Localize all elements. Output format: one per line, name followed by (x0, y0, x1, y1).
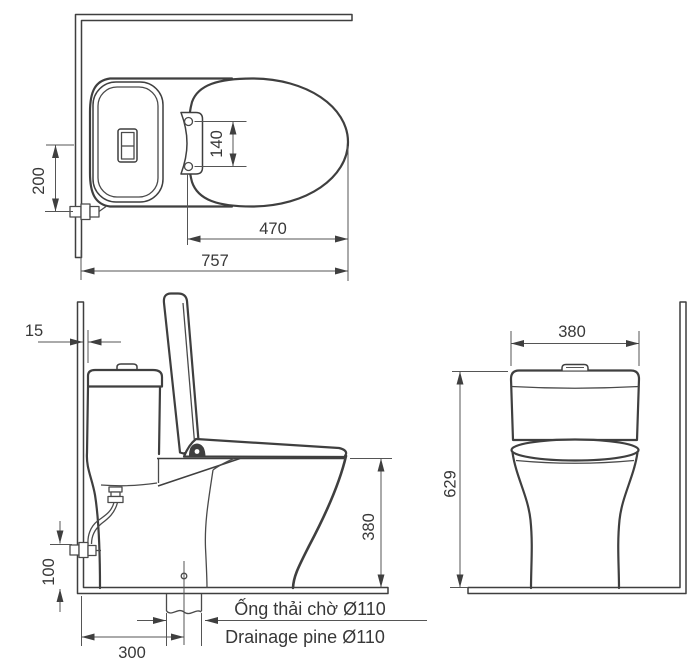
bowl-outline-side (293, 456, 346, 588)
supply-valve-side (88, 546, 96, 556)
dim-supply-height-label: 100 (40, 558, 58, 586)
top-view: 140 200 470 757 (30, 15, 352, 282)
side-view: 15 380 100 300 Ống thải chờ Ø110 Drainag… (25, 294, 427, 663)
dim-overall-height-label: 629 (442, 470, 460, 498)
pedestal-outline-front (513, 453, 532, 589)
bracket-hole (185, 118, 193, 126)
tank-inlet-fitting (109, 487, 122, 492)
body-ledge-line-side (101, 483, 157, 486)
pedestal-outline-front (618, 453, 637, 589)
tank-lid-side (88, 370, 162, 387)
dim-supply-offset-label: 200 (30, 167, 48, 195)
dim-drain-setout-label: 300 (118, 644, 146, 662)
supply-valve-side (79, 543, 88, 558)
supply-pipe-top (99, 207, 106, 212)
dim-bowl-length-label: 470 (259, 220, 287, 238)
dim-rim-height-label: 380 (360, 513, 378, 541)
dim-wall-gap-label: 15 (25, 322, 43, 340)
tank-inlet-fitting (111, 492, 120, 497)
bowl-rim-front (512, 440, 639, 461)
technical-drawing-canvas: 140 200 470 757 (0, 0, 700, 663)
tank-inlet-fitting (108, 497, 123, 503)
body-left-outline-side (87, 387, 100, 588)
skirt-line-side (158, 459, 240, 487)
hinge-pin (195, 449, 200, 454)
supply-valve-top (90, 207, 99, 218)
drain-note-en: Drainage pine Ø110 (225, 627, 385, 647)
supply-valve-top (81, 204, 90, 220)
dim-hinge-spacing-label: 140 (208, 130, 226, 158)
tank-front-edge-side (159, 387, 160, 454)
front-view: 380 629 (442, 302, 687, 594)
toilet-seat-side (184, 439, 346, 457)
drain-note-vi: Ống thải chờ Ø110 (234, 598, 386, 619)
technical-drawing-page: 140 200 470 757 (0, 0, 700, 663)
dim-tank-width-label: 380 (558, 323, 586, 341)
supply-valve-side (70, 545, 79, 555)
dim-total-depth-label: 757 (201, 252, 229, 270)
tank-outline-front (511, 371, 639, 441)
bracket-hole (185, 163, 193, 171)
trapway-curve-side (205, 470, 213, 588)
